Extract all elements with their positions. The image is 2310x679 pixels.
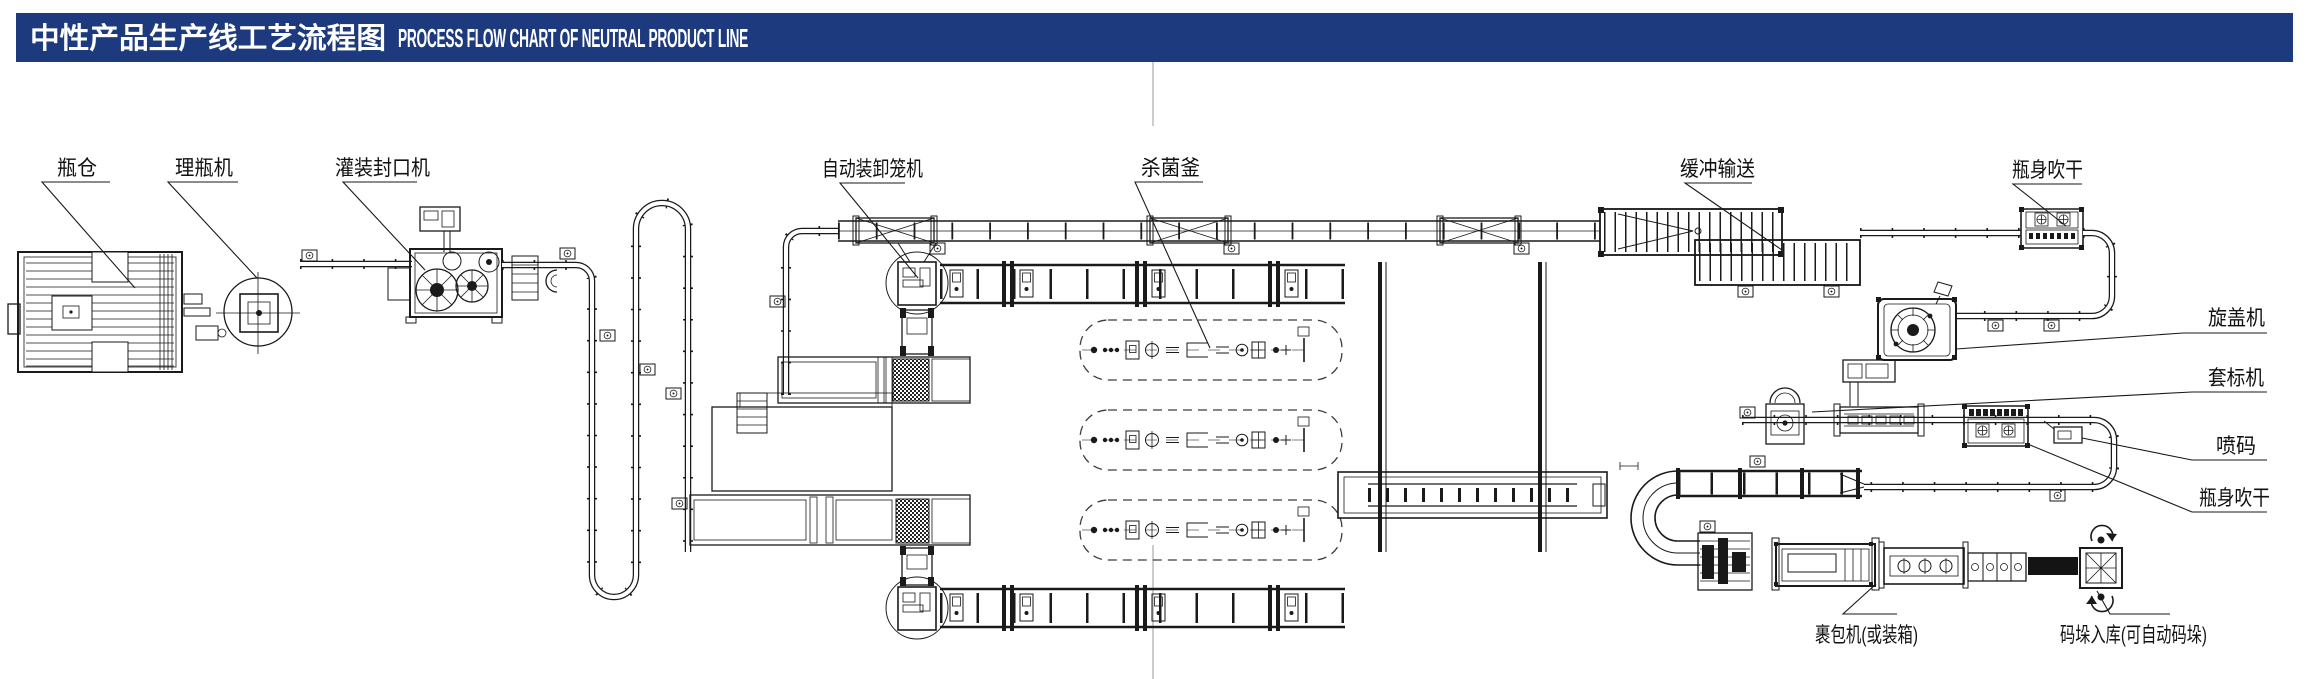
- overhead-chain-conveyor: [1338, 462, 1638, 518]
- wrapping-machine-leader-line: [1843, 584, 1897, 614]
- filling-sealing-leader-line: [343, 182, 425, 270]
- segment-conveyor: [1968, 553, 2026, 581]
- platform-stairs: [737, 393, 767, 433]
- bottle-unscrambler-machine: [216, 272, 300, 354]
- filler-starwheel-large: [416, 269, 458, 311]
- buffer-conveyor-table: [1598, 207, 1860, 297]
- wrapping-machine-label: 裹包机(或装箱): [1815, 624, 1918, 647]
- cap-feeder: [420, 207, 460, 252]
- bottle-silo-machine: [8, 252, 182, 372]
- bottle-drying-top-leader-line: [2013, 184, 2082, 226]
- label-wrapping-machine: 裹包机(或装箱): [1815, 584, 1918, 647]
- loading-platform: [512, 256, 892, 491]
- serpentine-air-conveyor: [502, 203, 688, 597]
- label-palletizing-warehouse: 码垛入库(可自动码垛): [2060, 591, 2207, 647]
- label-bottle-drying-top: 瓶身吹干: [2012, 159, 2083, 226]
- auto-cage-loader-label: 自动装卸笼机: [822, 158, 923, 181]
- auto-cage-loader-leader-line: [840, 183, 918, 278]
- silo-outfeed-conveyor: [184, 294, 226, 340]
- filler-starwheel-mid: [456, 270, 488, 302]
- sterilization-kettle-3: [1080, 500, 1342, 560]
- sleeve-labeler-leader-line: [1812, 392, 2267, 412]
- bottle-silo-label: 瓶仓: [57, 157, 97, 180]
- dimension-mark: [1620, 462, 1638, 470]
- capping-machine-label: 旋盖机: [2208, 307, 2265, 330]
- bottle-transfer-guide: [546, 270, 557, 292]
- flow-diagram-canvas: 中性产品生产线工艺流程图 PROCESS FLOW CHART OF NEUTR…: [0, 0, 2310, 679]
- cage-loader-turntable-2: [886, 577, 948, 639]
- bottle-silo-leader-line: [42, 182, 135, 288]
- rotation-arrow-top: [2091, 525, 2117, 543]
- bottle-drying-top-label: 瓶身吹干: [2012, 159, 2083, 182]
- sterilization-kettle-2: [1080, 410, 1342, 470]
- label-sleeve-labeling-machine: 套标机: [1812, 367, 2267, 412]
- riser-conveyor: [770, 231, 838, 395]
- process-flow-chart-page: 中性产品生产线工艺流程图 PROCESS FLOW CHART OF NEUTR…: [0, 0, 2310, 679]
- pallet-conveyor: [2028, 557, 2078, 575]
- filling-sealing-label: 灌装封口机: [335, 157, 430, 180]
- u-turn-conveyor: [1631, 471, 1700, 565]
- label-inkjet-coding: 喷码: [2082, 435, 2267, 460]
- basket-roller-conveyor-2: [940, 585, 1345, 631]
- palletizing-label: 码垛入库(可自动码垛): [2060, 624, 2207, 647]
- sterilization-kettle-1: [1080, 320, 1342, 380]
- capper-flag: [1934, 282, 1952, 304]
- sterilization-kettle-label: 杀菌釜: [1141, 157, 1200, 180]
- filler-infeed-conveyor: [300, 250, 412, 264]
- discharge-roller-conveyor: [1676, 456, 1864, 499]
- capper-discharge-transfer: [1843, 360, 1895, 406]
- cage-lift-1: [900, 308, 934, 356]
- blow-dryer-2: [1962, 404, 2030, 448]
- case-packer: [1879, 542, 1968, 588]
- labeling-line-conveyor: [1740, 407, 2114, 501]
- buffer-conveyor-label: 缓冲输送: [1680, 158, 1755, 181]
- wrapper-infeed: [1698, 521, 1752, 590]
- bottle-drying-right-label: 瓶身吹干: [2199, 487, 2270, 510]
- sleeve-labeler-label: 套标机: [2208, 367, 2264, 390]
- case-packer-heads: [1898, 558, 1952, 574]
- basket-cage-hatch-1: [893, 359, 929, 401]
- autoclave-room-walls: [1380, 262, 1546, 552]
- inkjet-coder-block: [2044, 421, 2082, 443]
- header-bar: 中性产品生产线工艺流程图 PROCESS FLOW CHART OF NEUTR…: [16, 13, 2293, 62]
- cage-lift-2: [900, 546, 934, 586]
- bottle-unscrambler-label: 理瓶机: [175, 157, 233, 180]
- basket-roller-conveyor-1: [940, 261, 1345, 307]
- inkjet-coding-label: 喷码: [2216, 435, 2256, 458]
- upper-basket-conveyor: [778, 357, 970, 403]
- page-title-zh: 中性产品生产线工艺流程图: [30, 22, 386, 55]
- overhead-truss-conveyor: [838, 216, 1600, 254]
- capping-machine-leader-line: [1956, 333, 2267, 349]
- capping-machine-block: [1876, 282, 1957, 360]
- page-title-en: PROCESS FLOW CHART OF NEUTRAL PRODUCT LI…: [398, 23, 748, 53]
- sleeve-labeler-block: [1766, 388, 1804, 444]
- wrapping-machine-block: [1772, 538, 1879, 590]
- basket-cage-hatch-2: [896, 499, 929, 543]
- lower-basket-conveyor: [672, 495, 970, 545]
- palletizing-leader-line: [2097, 591, 2170, 614]
- filling-sealing-machine-block: [388, 249, 502, 323]
- blow-dryer-1: [2019, 207, 2084, 250]
